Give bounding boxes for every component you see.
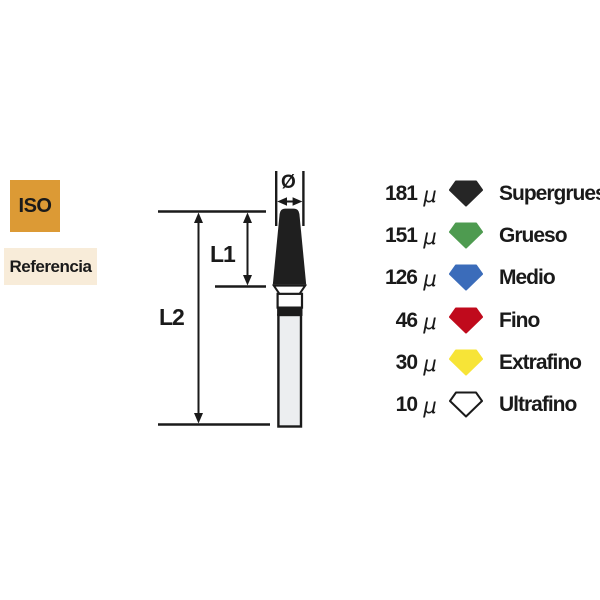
micron-symbol: μ <box>421 396 439 417</box>
diamond-icon <box>449 307 483 334</box>
l2-label: L2 <box>159 306 184 329</box>
referencia-badge: Referencia <box>4 248 97 285</box>
legend-row-grueso: 151 μ Grueso <box>370 221 567 249</box>
legend-row-supergrueso: 181 μ Supergrueso <box>370 179 600 207</box>
diamond-icon <box>449 222 483 249</box>
bur-spec-diagram: ISO Referencia Ø L1 L2 181 μ Supergrueso… <box>0 0 600 600</box>
micron-symbol: μ <box>421 227 439 248</box>
bur-depth-band <box>278 307 302 315</box>
legend-row-fino: 46 μ Fino <box>370 306 539 334</box>
l1-dimension-arrow <box>243 213 252 286</box>
grit-label: Supergrueso <box>499 183 600 204</box>
grit-value: 30 <box>370 352 417 373</box>
diamond-icon <box>449 264 483 291</box>
technical-drawing <box>0 0 600 600</box>
bur-tip-shape <box>273 209 306 285</box>
grit-label: Fino <box>499 310 539 331</box>
diameter-symbol-label: Ø <box>281 173 295 192</box>
bur-shank-shape <box>278 315 301 427</box>
micron-symbol: μ <box>421 269 439 290</box>
l2-dimension-arrow <box>194 213 203 424</box>
micron-symbol: μ <box>421 185 439 206</box>
bur-neck-shape <box>274 286 305 294</box>
diamond-icon <box>449 391 483 418</box>
iso-badge: ISO <box>10 180 60 232</box>
diameter-dimension-arrow <box>277 197 302 205</box>
micron-symbol: μ <box>421 354 439 375</box>
grit-value: 151 <box>370 225 417 246</box>
l1-label: L1 <box>210 243 235 266</box>
iso-badge-label: ISO <box>19 195 52 218</box>
diamond-icon <box>449 180 483 207</box>
micron-symbol: μ <box>421 312 439 333</box>
grit-value: 181 <box>370 183 417 204</box>
grit-label: Grueso <box>499 225 567 246</box>
bur-collar-shape <box>278 294 302 308</box>
bur-illustration <box>273 209 306 427</box>
diamond-icon <box>449 349 483 376</box>
legend-row-ultrafino: 10 μ Ultrafino <box>370 390 576 418</box>
grit-value: 46 <box>370 310 417 331</box>
grit-label: Medio <box>499 267 555 288</box>
legend-row-extrafino: 30 μ Extrafino <box>370 348 581 376</box>
grit-value: 126 <box>370 267 417 288</box>
referencia-badge-label: Referencia <box>10 257 92 277</box>
grit-label: Extrafino <box>499 352 581 373</box>
legend-row-medio: 126 μ Medio <box>370 263 555 291</box>
grit-label: Ultrafino <box>499 394 576 415</box>
grit-value: 10 <box>370 394 417 415</box>
